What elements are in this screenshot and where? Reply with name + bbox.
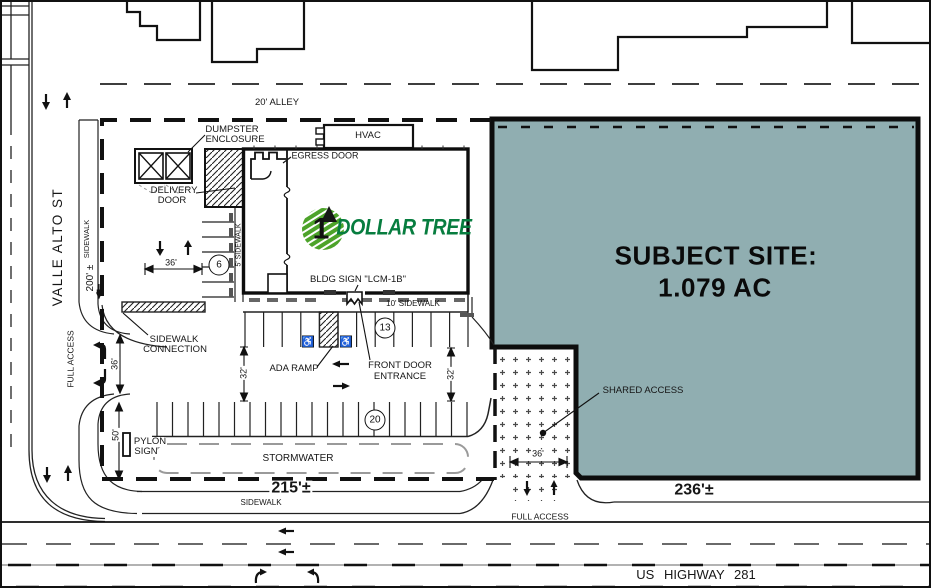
- dim-drive-west: 36': [110, 357, 119, 371]
- highway-name-label: US HIGHWAY 281: [631, 568, 760, 582]
- ada-ramp-hatch: [320, 312, 339, 347]
- site-plan: ♿ ♿ 20' ALLEY VALLE ALTO ST SIDEWALK 200…: [0, 0, 931, 588]
- dim-frontage-south: 215'±: [269, 481, 312, 498]
- dim-aisle-b: 32': [446, 367, 455, 381]
- front-door-label-2: ENTRANCE: [374, 372, 426, 382]
- ada-ramp-label: ADA RAMP: [269, 364, 318, 374]
- neighbor-building-outlines: [127, 2, 931, 70]
- pylon-sign-symbol: [123, 433, 130, 456]
- delivery-door-label-2: DOOR: [158, 196, 187, 206]
- full-access-left-label: FULL ACCESS: [67, 330, 76, 387]
- stormwater-label: STORMWATER: [263, 454, 334, 465]
- ada-symbol-icon: ♿: [340, 335, 352, 348]
- street-name-valle-alto: VALLE ALTO ST: [51, 188, 65, 307]
- stall-count-south: 20: [365, 410, 386, 431]
- shared-access-point: [540, 430, 546, 436]
- wheel-stops-west: [229, 213, 233, 297]
- sidewalk-connection-label-2: CONNECTION: [143, 345, 207, 355]
- dim-aisle-west: 36': [164, 258, 178, 267]
- sidewalk-10-label: 10' SIDEWALK: [386, 300, 440, 308]
- highway-lines: [2, 480, 931, 587]
- dollar-tree-wordmark: DOLLAR TREE: [336, 217, 471, 240]
- stall-count-front: 13: [375, 318, 396, 339]
- front-door-label-1: FRONT DOOR: [368, 361, 432, 371]
- brand-number: 1: [313, 213, 330, 245]
- left-sidewalk-label: SIDEWALK: [83, 220, 91, 258]
- pylon-sign-label-2: SIGN: [134, 447, 157, 457]
- hvac-label: HVAC: [355, 131, 381, 141]
- dumpster-label-2: ENCLOSURE: [205, 135, 264, 145]
- sidewalk-connection-hatch: [122, 302, 205, 312]
- bottom-sidewalk-label: SIDEWALK: [238, 499, 283, 507]
- shared-access-label: SHARED ACCESS: [603, 386, 684, 396]
- front-door-symbol: [347, 292, 362, 304]
- dim-frontage-site: 236'±: [672, 483, 715, 500]
- ada-symbol-icon: ♿: [302, 335, 314, 348]
- dim-aisle-a: 32': [239, 366, 248, 380]
- delivery-ramp-hatch: [205, 149, 243, 207]
- sidewalk-5-label: 5' SIDEWALK: [235, 223, 242, 266]
- dim-setback-south: 50': [111, 428, 120, 442]
- shared-access-area: [495, 347, 573, 501]
- dim-frontage-west: 200' ±: [86, 264, 97, 293]
- site-plan-drawing: ♿ ♿: [2, 2, 931, 588]
- stall-count-west: 6: [209, 255, 230, 276]
- subject-site-title: SUBJECT SITE:: [615, 242, 818, 269]
- subject-site-acreage: 1.079 AC: [658, 274, 772, 301]
- bldg-sign-label: BLDG SIGN "LCM-1B": [310, 275, 406, 285]
- dim-drive-shared: 36': [531, 449, 545, 458]
- full-access-bottom-label: FULL ACCESS: [511, 513, 568, 522]
- alley-label: 20' ALLEY: [255, 98, 299, 108]
- egress-door-label: EGRESS DOOR: [291, 151, 358, 160]
